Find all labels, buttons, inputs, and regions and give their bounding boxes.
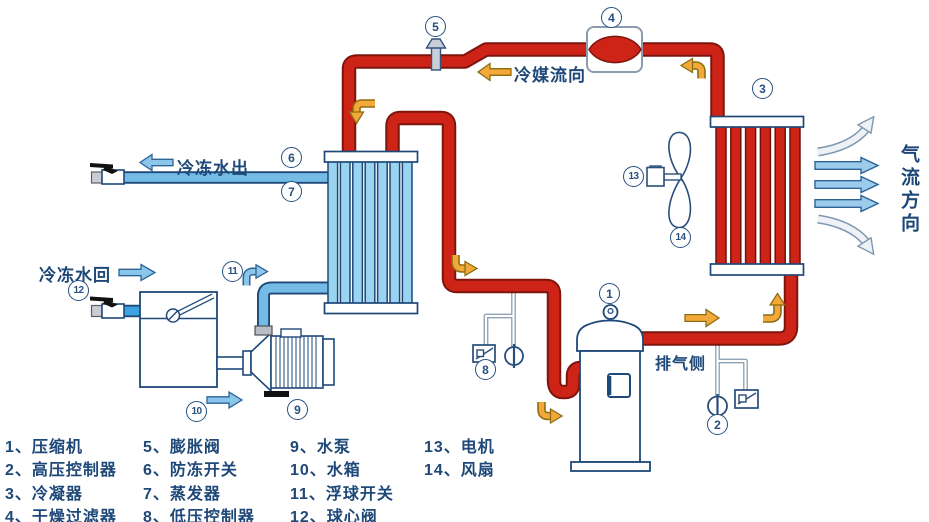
legend-item: 10、水箱: [290, 456, 361, 480]
condenser: [711, 117, 804, 276]
hp-sensor-lines: [718, 343, 746, 397]
badge-filter-dryer: 4: [601, 7, 622, 28]
label-refrigerant-flow: 冷媒流向: [514, 61, 586, 86]
badge-hp-controller: 2: [707, 414, 728, 435]
badge-ball-valve: 12: [68, 280, 89, 301]
arrow-left-water-out: [140, 155, 173, 171]
arrow-corner-left-condenser-top: [681, 59, 702, 79]
legend-item: 14、风扇: [424, 456, 495, 480]
lp-sensor-lines: [486, 290, 514, 348]
legend-item: 2、高压控制器: [5, 456, 117, 480]
evaporator: [325, 152, 418, 314]
water-tank: [140, 292, 217, 387]
compressor: [571, 305, 650, 471]
arrow-right-tank: [207, 392, 242, 408]
water-pump: [217, 326, 334, 397]
arrow-corner-right-float: [247, 265, 268, 286]
badge-antifreeze-switch: 6: [281, 147, 302, 168]
legend-item: 9、水泵: [290, 433, 351, 457]
pipe-compressor-to-condenser: [638, 267, 791, 339]
legend-item: 6、防冻开关: [143, 456, 238, 480]
badge-evaporator: 7: [281, 181, 302, 202]
label-airflow-direction: 气流方向: [896, 144, 920, 239]
legend-item: 8、低压控制器: [143, 503, 255, 522]
airflow-arrow-2: [815, 177, 878, 193]
label-exhaust-side: 排气侧: [655, 350, 706, 374]
badge-water-pump: 9: [287, 399, 308, 420]
arrow-left-refrigerant: [478, 64, 511, 81]
lp-gauge-icon: [505, 344, 523, 368]
legend-item: 1、压缩机: [5, 433, 83, 457]
legend-item: 11、浮球开关: [290, 480, 394, 504]
hp-controller: [735, 390, 758, 408]
arrow-right-discharge: [685, 310, 719, 327]
filter-dryer: [587, 27, 642, 72]
badge-condenser: 3: [752, 78, 773, 99]
arrow-corner-up-to-condenser: [763, 294, 785, 319]
airflow-arrow-curved-bottom: [818, 219, 874, 254]
arrow-corner-right-to-compressor: [542, 402, 563, 423]
ball-valve-out: [90, 163, 124, 184]
badge-water-tank: 10: [186, 401, 207, 422]
badge-lp-controller: 8: [475, 359, 496, 380]
airflow-arrows: [815, 117, 878, 254]
legend-item: 4、干燥过滤器: [5, 503, 117, 522]
ball-valve-return: [90, 297, 124, 319]
condenser-tubes: [716, 124, 800, 267]
legend-item: 12、球心阀: [290, 503, 378, 522]
label-chilled-water-out: 冷冻水出: [177, 154, 249, 179]
badge-expansion-valve: 5: [425, 16, 446, 37]
evaporator-tubes: [328, 158, 412, 308]
pump-discharge-pipe: [264, 288, 333, 333]
airflow-arrow-curved-top: [818, 117, 874, 152]
arrow-corner-right-suction: [456, 255, 478, 276]
legend-item: 13、电机: [424, 433, 495, 457]
chiller-diagram: 冷媒流向 冷冻水出 冷冻水回 排气侧 气流方向 1 2 3 4 5 6 7 8 …: [0, 0, 929, 522]
arrow-right-water-return: [119, 265, 155, 281]
airflow-arrow-1: [815, 158, 878, 174]
legend-item: 5、膨胀阀: [143, 433, 221, 457]
badge-float-switch: 11: [222, 261, 243, 282]
airflow-arrow-3: [815, 196, 878, 212]
legend-item: 7、蒸发器: [143, 480, 221, 504]
badge-motor: 13: [623, 166, 644, 187]
badge-fan: 14: [670, 227, 691, 248]
legend-item: 3、冷凝器: [5, 480, 83, 504]
badge-compressor: 1: [599, 283, 620, 304]
